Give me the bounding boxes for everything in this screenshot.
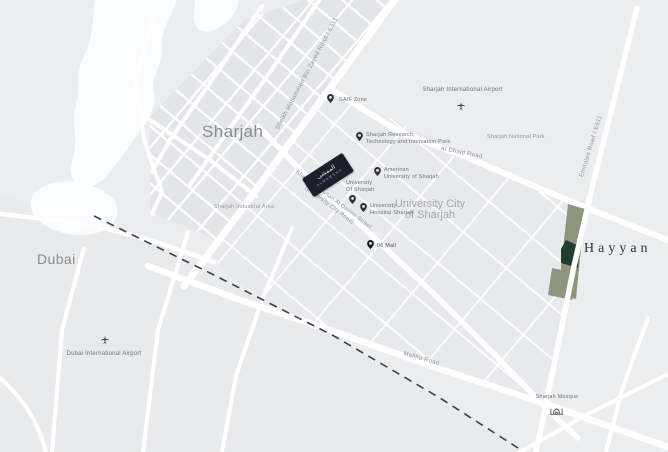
map-canvas — [0, 0, 668, 452]
saif-zone-label: SAIF Zone — [339, 97, 367, 104]
mosque-label: Sharjah Mosque — [527, 394, 587, 401]
university-of-sharjah-line2: Of Sharjah — [346, 187, 374, 194]
hayyan-label: Hayyan — [584, 241, 652, 257]
mall-pin-icon — [367, 240, 374, 249]
research-park-pin-icon — [356, 132, 363, 141]
sharjah-airport-label: Sharjah International Airport — [415, 87, 510, 95]
university-of-sharjah-label: University Of Sharjah — [346, 180, 374, 194]
dubai-city-label: Dubai — [37, 251, 76, 269]
dubai-airport-label: Dubai International Airport — [54, 351, 154, 359]
research-park-label: Sharjah Research, Technology and Innovat… — [366, 132, 450, 146]
university-of-sharjah-line1: University — [346, 180, 374, 187]
american-university-line2: University of Sharjah — [384, 174, 439, 181]
industrial-area-label: Sharjah Industrial Area — [214, 204, 274, 211]
university-hospital-label: University Hospital Sharjah — [370, 203, 414, 217]
american-university-line1: American — [384, 167, 439, 174]
research-park-line2: Technology and Innovation Park — [366, 139, 450, 146]
american-university-label: American University of Sharjah — [384, 167, 439, 181]
university-of-sharjah-pin-icon — [349, 195, 356, 204]
location-map: Sharjah Dubai University City of Sharjah… — [0, 0, 668, 452]
university-hospital-pin-icon — [360, 203, 367, 212]
american-university-pin-icon — [374, 167, 381, 176]
mall-label: 06 Mall — [377, 243, 396, 250]
university-hospital-line1: University — [370, 203, 414, 210]
mosque-icon — [549, 405, 564, 416]
sharjah-airport-plane-icon — [456, 101, 466, 111]
saif-zone-pin-icon — [327, 94, 334, 103]
national-park-label: Sharjah National Park — [487, 134, 545, 141]
research-park-line1: Sharjah Research, — [366, 132, 450, 139]
university-hospital-line2: Hospital Sharjah — [370, 210, 414, 217]
sharjah-city-label: Sharjah — [202, 121, 263, 142]
dubai-airport-plane-icon — [100, 335, 110, 345]
